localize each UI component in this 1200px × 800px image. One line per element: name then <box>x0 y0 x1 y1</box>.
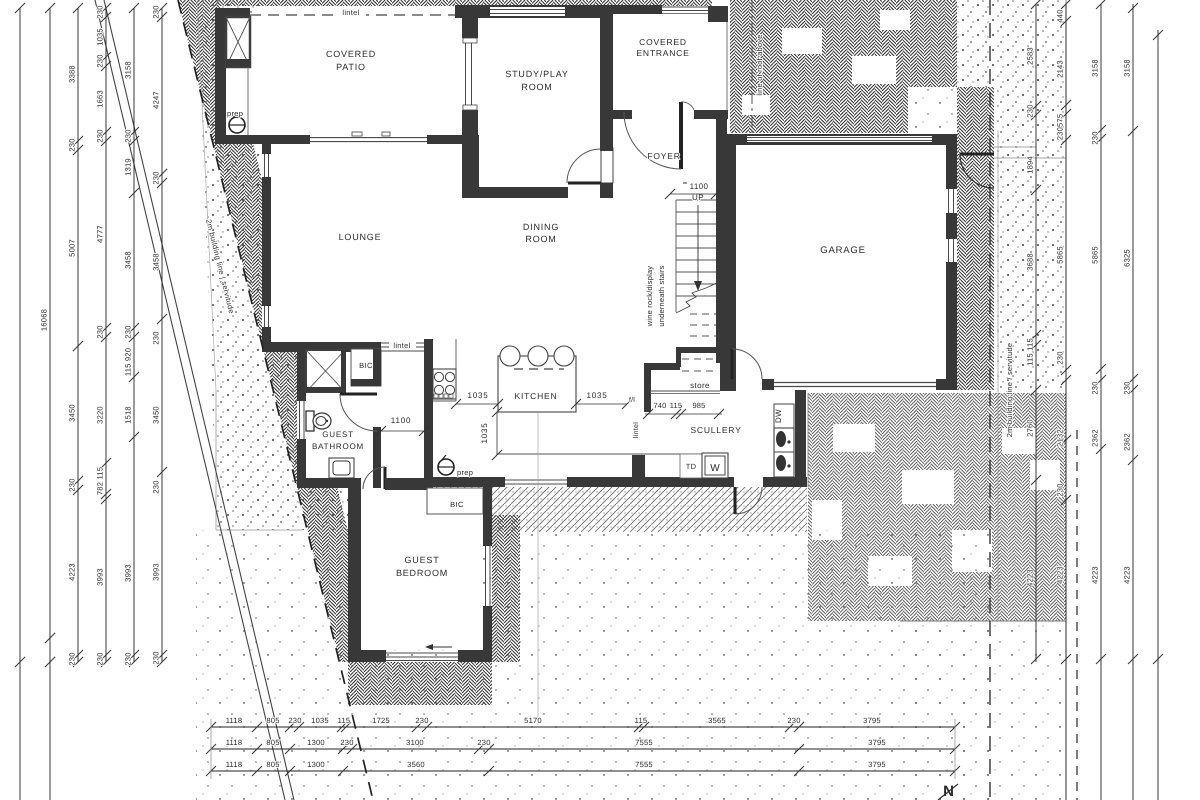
svg-text:230: 230 <box>415 716 428 725</box>
svg-text:1319: 1319 <box>124 158 133 176</box>
svg-text:1725: 1725 <box>372 716 390 725</box>
svg-text:DINING: DINING <box>523 222 559 232</box>
svg-text:230: 230 <box>152 171 161 184</box>
svg-text:2m building line / servitude: 2m building line / servitude <box>1005 343 1014 437</box>
svg-text:230575: 230575 <box>1056 114 1065 141</box>
svg-text:3220: 3220 <box>96 406 105 424</box>
svg-text:lintel: lintel <box>632 422 640 438</box>
svg-text:1100: 1100 <box>391 416 411 425</box>
svg-text:SCULLERY: SCULLERY <box>690 425 741 435</box>
svg-text:440: 440 <box>1056 9 1065 22</box>
svg-text:230: 230 <box>152 480 161 493</box>
svg-text:1300: 1300 <box>307 738 325 747</box>
svg-text:prep: prep <box>227 109 243 118</box>
svg-text:3388: 3388 <box>68 65 77 83</box>
svg-text:line of roof above: line of roof above <box>755 34 764 95</box>
svg-text:230: 230 <box>152 651 161 664</box>
svg-text:3795: 3795 <box>863 716 881 725</box>
svg-text:1035: 1035 <box>311 716 329 725</box>
svg-text:230: 230 <box>124 652 133 665</box>
svg-text:4223: 4223 <box>68 563 77 581</box>
svg-text:3795: 3795 <box>868 738 886 747</box>
svg-text:ENTRANCE: ENTRANCE <box>636 48 689 58</box>
svg-text:115 920: 115 920 <box>124 348 133 376</box>
svg-text:GUEST: GUEST <box>322 430 354 439</box>
svg-text:230: 230 <box>96 129 105 142</box>
svg-text:230: 230 <box>96 54 105 67</box>
svg-text:ROOM: ROOM <box>525 234 556 244</box>
svg-text:TD: TD <box>686 462 697 471</box>
svg-text:1035: 1035 <box>468 391 489 400</box>
svg-text:underneath stairs: underneath stairs <box>657 265 666 326</box>
svg-text:1100: 1100 <box>690 182 709 191</box>
svg-text:BIC: BIC <box>359 361 373 370</box>
svg-text:1035: 1035 <box>480 423 489 444</box>
svg-text:4223: 4223 <box>1026 569 1035 587</box>
svg-text:3795: 3795 <box>868 760 886 769</box>
svg-text:3158: 3158 <box>1123 59 1132 77</box>
svg-text:3688: 3688 <box>1026 253 1035 271</box>
svg-text:1035: 1035 <box>587 391 608 400</box>
svg-text:230: 230 <box>288 716 301 725</box>
svg-text:3158: 3158 <box>124 61 133 79</box>
svg-text:3458: 3458 <box>124 251 133 269</box>
svg-text:2143: 2143 <box>1056 60 1065 78</box>
svg-text:230: 230 <box>1123 381 1132 394</box>
svg-text:230: 230 <box>96 325 105 338</box>
svg-text:230: 230 <box>787 716 800 725</box>
svg-text:16068: 16068 <box>40 309 49 331</box>
svg-text:230: 230 <box>68 138 77 151</box>
svg-text:805: 805 <box>266 760 279 769</box>
svg-text:115 115: 115 115 <box>1026 338 1035 366</box>
svg-text:230: 230 <box>1026 104 1035 117</box>
svg-text:805: 805 <box>266 738 279 747</box>
svg-text:5007: 5007 <box>68 239 77 257</box>
svg-text:6325: 6325 <box>1123 249 1132 267</box>
svg-text:230: 230 <box>477 738 490 747</box>
svg-text:2362: 2362 <box>1091 429 1100 447</box>
svg-text:STUDY/PLAY: STUDY/PLAY <box>505 69 568 79</box>
svg-text:3993: 3993 <box>96 568 105 586</box>
svg-text:GUEST: GUEST <box>404 555 439 565</box>
svg-text:3100: 3100 <box>406 738 424 747</box>
svg-text:GARAGE: GARAGE <box>820 245 865 256</box>
svg-text:DW: DW <box>774 409 783 423</box>
svg-text:5865: 5865 <box>1056 246 1065 264</box>
svg-text:lintel: lintel <box>342 8 359 17</box>
svg-text:1118: 1118 <box>226 760 243 769</box>
svg-text:230: 230 <box>68 478 77 491</box>
svg-text:1518: 1518 <box>124 406 133 424</box>
svg-text:115: 115 <box>635 716 648 725</box>
svg-text:3450: 3450 <box>68 404 77 422</box>
svg-text:782 115: 782 115 <box>96 467 105 495</box>
svg-text:230: 230 <box>340 738 353 747</box>
svg-text:BEDROOM: BEDROOM <box>396 568 448 578</box>
svg-text:COVERED: COVERED <box>326 49 376 59</box>
svg-text:4777: 4777 <box>96 225 105 243</box>
svg-text:230: 230 <box>1056 351 1065 364</box>
svg-text:prep: prep <box>457 468 473 477</box>
svg-text:230: 230 <box>1056 483 1065 496</box>
svg-text:3158: 3158 <box>1091 59 1100 77</box>
svg-text:1118: 1118 <box>226 716 243 725</box>
svg-text:store: store <box>690 381 710 390</box>
svg-text:5170: 5170 <box>524 716 542 725</box>
svg-text:LOUNGE: LOUNGE <box>339 232 382 242</box>
svg-text:f/l: f/l <box>629 396 635 404</box>
svg-text:4247: 4247 <box>152 91 161 109</box>
svg-text:wine rock/display: wine rock/display <box>645 266 654 328</box>
svg-text:4223: 4223 <box>1091 566 1100 584</box>
svg-text:230: 230 <box>152 5 161 18</box>
svg-text:5865: 5865 <box>1091 246 1100 264</box>
svg-text:3450: 3450 <box>152 406 161 424</box>
svg-text:115: 115 <box>670 401 683 410</box>
svg-text:1035: 1035 <box>96 28 105 46</box>
svg-text:ROOM: ROOM <box>521 82 552 92</box>
svg-text:2132: 2132 <box>1056 429 1065 447</box>
svg-text:2583: 2583 <box>1026 47 1035 65</box>
svg-text:1894: 1894 <box>1026 156 1035 174</box>
svg-text:740: 740 <box>653 401 666 410</box>
svg-text:1118: 1118 <box>226 738 243 747</box>
svg-text:1663: 1663 <box>96 90 105 108</box>
svg-text:lintel: lintel <box>393 341 410 350</box>
svg-text:BATHROOM: BATHROOM <box>312 442 364 451</box>
svg-text:985: 985 <box>692 401 705 410</box>
svg-text:W: W <box>710 463 720 474</box>
svg-text:2760: 2760 <box>1026 419 1035 437</box>
svg-text:FOYER: FOYER <box>647 151 680 161</box>
svg-text:PATIO: PATIO <box>336 62 366 72</box>
svg-text:4223: 4223 <box>1056 566 1065 584</box>
svg-text:230: 230 <box>152 331 161 344</box>
svg-text:115: 115 <box>338 716 351 725</box>
svg-text:7555: 7555 <box>635 738 653 747</box>
svg-text:3458: 3458 <box>152 253 161 271</box>
svg-text:3993: 3993 <box>152 563 161 581</box>
svg-text:2362: 2362 <box>1123 433 1132 451</box>
svg-text:230: 230 <box>96 5 105 18</box>
svg-text:KITCHEN: KITCHEN <box>515 391 558 401</box>
svg-text:1300: 1300 <box>307 760 325 769</box>
svg-text:230: 230 <box>1091 131 1100 144</box>
svg-text:230: 230 <box>96 652 105 665</box>
svg-text:7555: 7555 <box>635 760 653 769</box>
svg-text:805: 805 <box>266 716 279 725</box>
svg-text:230: 230 <box>124 129 133 142</box>
svg-text:3565: 3565 <box>708 716 726 725</box>
svg-text:230: 230 <box>68 652 77 665</box>
svg-text:COVERED: COVERED <box>639 37 687 47</box>
svg-text:3993: 3993 <box>124 564 133 582</box>
svg-text:4223: 4223 <box>1123 566 1132 584</box>
svg-text:230: 230 <box>124 325 133 338</box>
svg-text:3560: 3560 <box>407 760 425 769</box>
svg-text:BIC: BIC <box>450 500 464 509</box>
svg-text:230: 230 <box>1091 381 1100 394</box>
